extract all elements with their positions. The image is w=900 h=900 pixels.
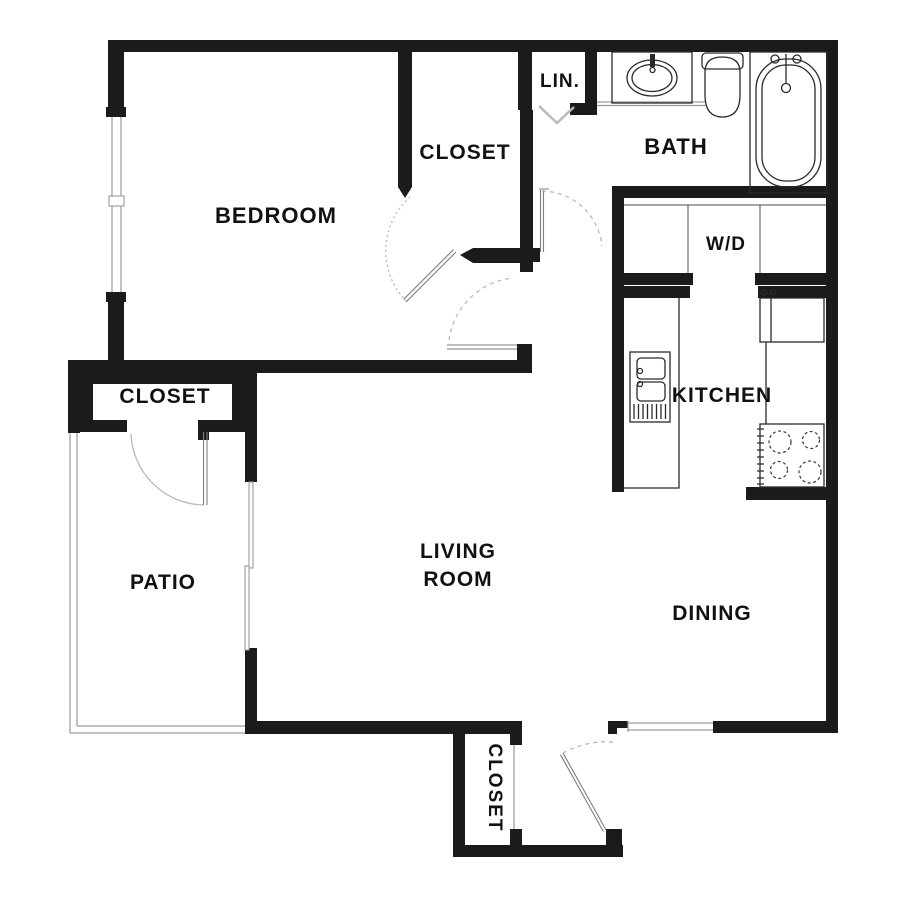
bedroom-label: BEDROOM [215,203,337,228]
patio-wall-bottom [70,726,245,733]
room-labels: BEDROOM CLOSET LIN. BATH W/D KITCHEN CLO… [119,71,772,833]
wall-hall-closet-bottom-left [80,420,127,432]
wall-patio-divider-upper [245,372,257,482]
wall-bath-bottom [612,186,838,198]
refrigerator [760,290,824,342]
wall-bedroom-left-lower [108,292,124,362]
floor-plan-canvas: BEDROOM CLOSET LIN. BATH W/D KITCHEN CLO… [0,0,900,900]
entry-closet-label: CLOSET [484,743,505,832]
wall-right [826,40,838,733]
patio-sliding-door-panel-2 [245,566,249,650]
wall-hall-horizontal [473,248,533,263]
kitchen-label: KITCHEN [672,384,772,407]
wall-living-door-hinge [517,344,532,373]
wall-kitchen-left [612,198,624,492]
stove [757,424,824,487]
wall-bedroom-closet-left [398,52,412,187]
bath-door-leaf [539,189,549,252]
wall-wd-stub-right [755,273,826,285]
wall-wd-stub-left [612,273,693,285]
wall-window-foot-top [106,107,126,117]
dining-label: DINING [672,602,752,625]
entry-door-leaf [560,753,606,832]
living-room-label-line1: LIVING [420,540,496,563]
bath-door-arc [542,191,602,246]
patio-sliding-door-panel-1 [249,482,253,568]
wall-entry-bottom [453,845,623,857]
wall-kitchen-top-right [758,286,826,298]
wall-kitchen-top-left [612,286,690,298]
hall-closet-door-arc [131,434,203,505]
bathtub [750,52,827,193]
jamb-bedroom-door [460,248,473,263]
bedroom-window-mullion [109,196,124,206]
fixtures [597,52,827,488]
kitchen-sink [630,352,670,422]
wall-living-bottom [245,721,522,734]
wall-entry-closet-left [453,721,465,857]
wall-patio-divider-lower [245,648,257,733]
linen-label: LIN. [540,71,580,92]
jamb-bedroom-closet [398,187,412,198]
wall-entry-closet-right-bottom [510,829,522,845]
bath-label: BATH [644,134,707,159]
tub-faucet-handle-left [771,55,779,63]
tub-drain [782,84,791,93]
dining-window [628,721,713,732]
floor-plan: BEDROOM CLOSET LIN. BATH W/D KITCHEN CLO… [0,0,900,900]
wall-entry-stub-side [608,721,617,734]
vanity-faucet-icon [650,54,655,67]
wall-kitchen-bottom [746,487,838,500]
bedroom-door-arc [386,197,410,301]
wall-lin-right-foot [570,103,597,115]
wall-bedroom-left-upper [108,40,124,117]
linen-bifold-door [539,106,574,123]
sink-drainboard [634,404,666,419]
wall-entry-closet-right-top [510,721,522,745]
wall-hall-closet-right [232,384,245,432]
entry-door-arc [563,742,613,753]
hall-closet-door-leaf [204,432,208,505]
washer-dryer-label: W/D [706,234,746,255]
hall-closet-label: CLOSET [119,385,210,408]
living-door-arc [449,278,513,340]
bedroom-closet-label: CLOSET [419,141,510,164]
patio-wall-left [70,433,77,733]
wall-entry-hinge-stub [606,829,622,845]
patio-label: PATIO [130,571,196,594]
vanity-sink [597,52,706,106]
wall-hall-closet-top [68,372,245,384]
living-door-leaf [447,345,517,349]
wall-top [110,40,838,52]
toilet [702,53,743,117]
kitchen-counter [624,298,679,488]
living-room-label-line2: ROOM [423,568,492,591]
wall-dining-bottom [713,721,838,733]
bedroom-door-leaf [404,250,457,303]
wall-closet-lin-divider [518,52,532,110]
wall-left-stub [68,360,80,433]
wall-bedroom-bottom [68,360,532,373]
wall-hall-closet-left [80,384,93,420]
wall-hall-vertical [520,110,533,272]
